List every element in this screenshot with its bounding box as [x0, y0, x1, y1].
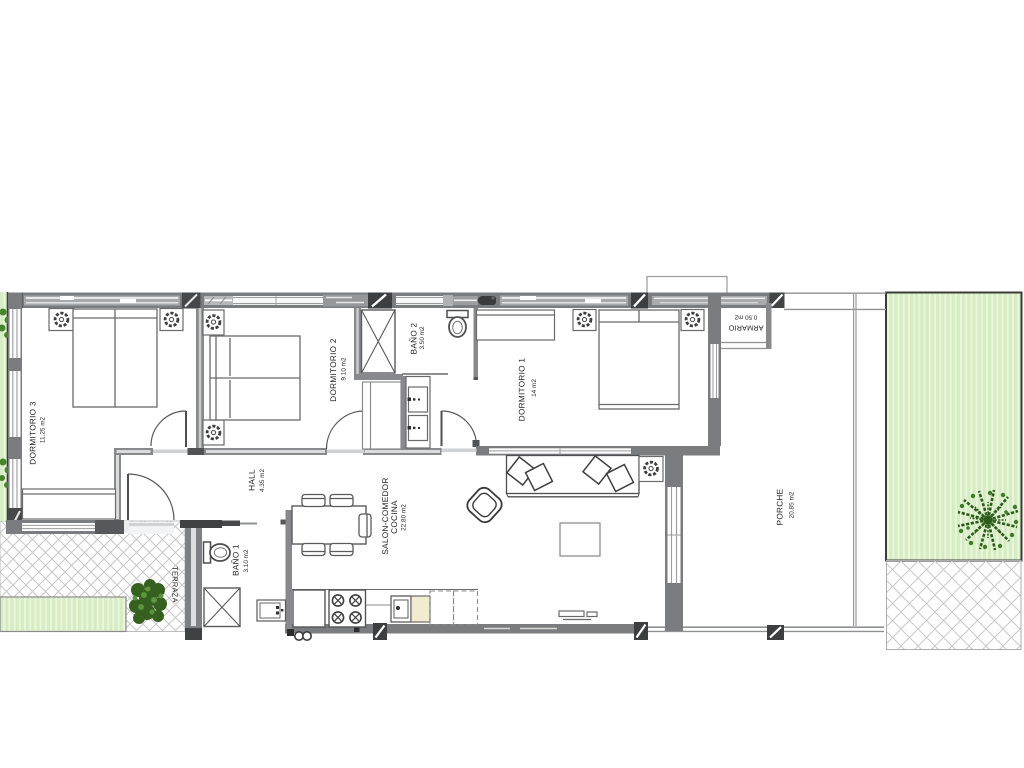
svg-text:TERRAZA: TERRAZA — [171, 566, 180, 603]
svg-text:HALL: HALL — [248, 469, 257, 491]
svg-text:PORCHE: PORCHE — [776, 488, 785, 525]
svg-text:20.85 m2: 20.85 m2 — [789, 491, 796, 518]
svg-text:22.80 m2: 22.80 m2 — [401, 504, 408, 531]
svg-text:SALON-COMEDOR: SALON-COMEDOR — [381, 477, 390, 554]
svg-text:0.50 m2: 0.50 m2 — [734, 314, 757, 321]
svg-text:DORMITORIO 3: DORMITORIO 3 — [29, 401, 38, 465]
svg-text:DORMITORIO 2: DORMITORIO 2 — [329, 338, 338, 402]
svg-text:BAÑO 1: BAÑO 1 — [231, 544, 241, 576]
svg-text:3.10 m2: 3.10 m2 — [243, 549, 250, 573]
svg-text:9.10 m2: 9.10 m2 — [341, 357, 348, 381]
svg-text:BAÑO 2: BAÑO 2 — [409, 322, 419, 354]
svg-text:ARMARIO: ARMARIO — [728, 324, 763, 333]
svg-text:14 m2: 14 m2 — [531, 379, 538, 397]
svg-text:COCINA: COCINA — [390, 500, 399, 534]
svg-text:3.50 m2: 3.50 m2 — [419, 326, 426, 350]
svg-text:DORMITORIO 1: DORMITORIO 1 — [518, 358, 527, 422]
svg-text:11.25 m2: 11.25 m2 — [40, 416, 47, 443]
svg-text:4.35 m2: 4.35 m2 — [259, 469, 266, 493]
